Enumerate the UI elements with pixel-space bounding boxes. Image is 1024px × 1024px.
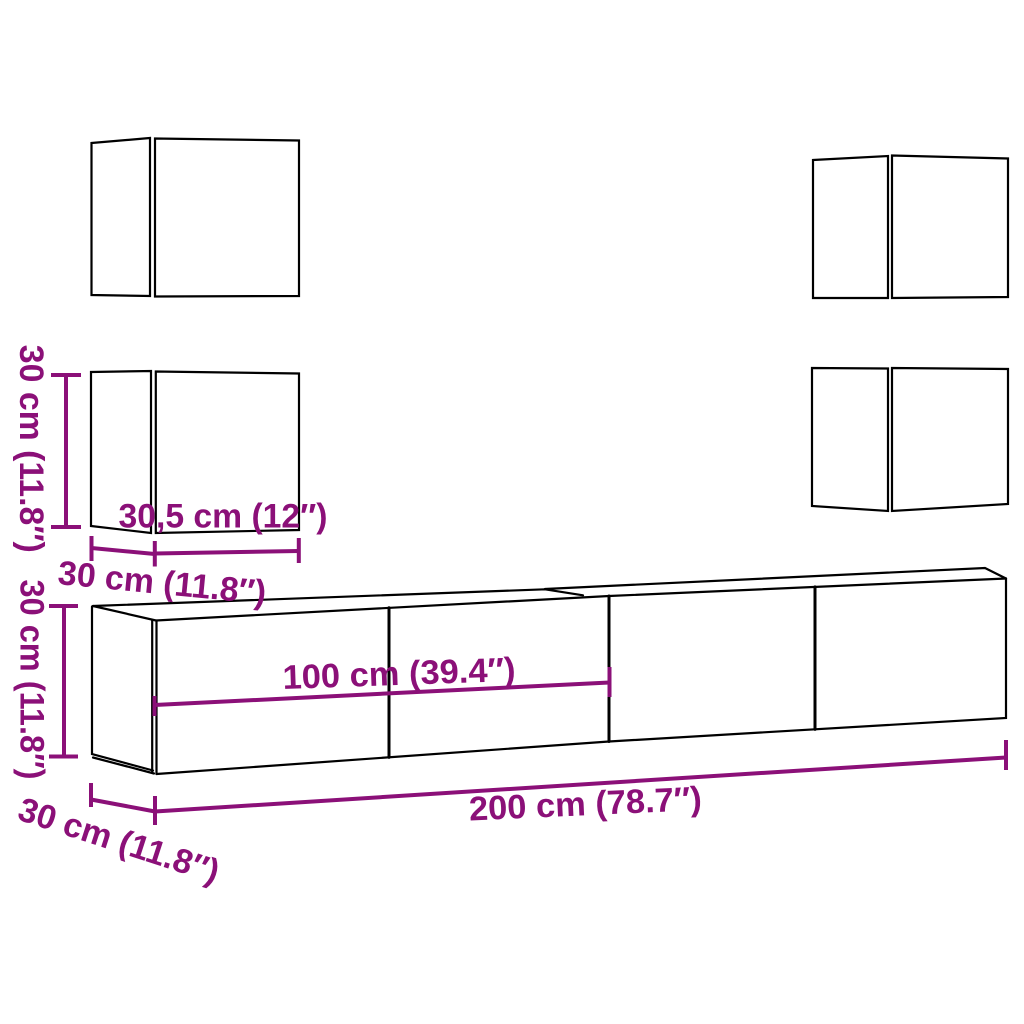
svg-text:30 cm (11.8″): 30 cm (11.8″) <box>13 580 51 780</box>
svg-text:30,5 cm (12″): 30,5 cm (12″) <box>119 498 328 536</box>
svg-text:30 cm (11.8″): 30 cm (11.8″) <box>12 345 50 553</box>
svg-text:100 cm (39.4″): 100 cm (39.4″) <box>282 651 516 697</box>
